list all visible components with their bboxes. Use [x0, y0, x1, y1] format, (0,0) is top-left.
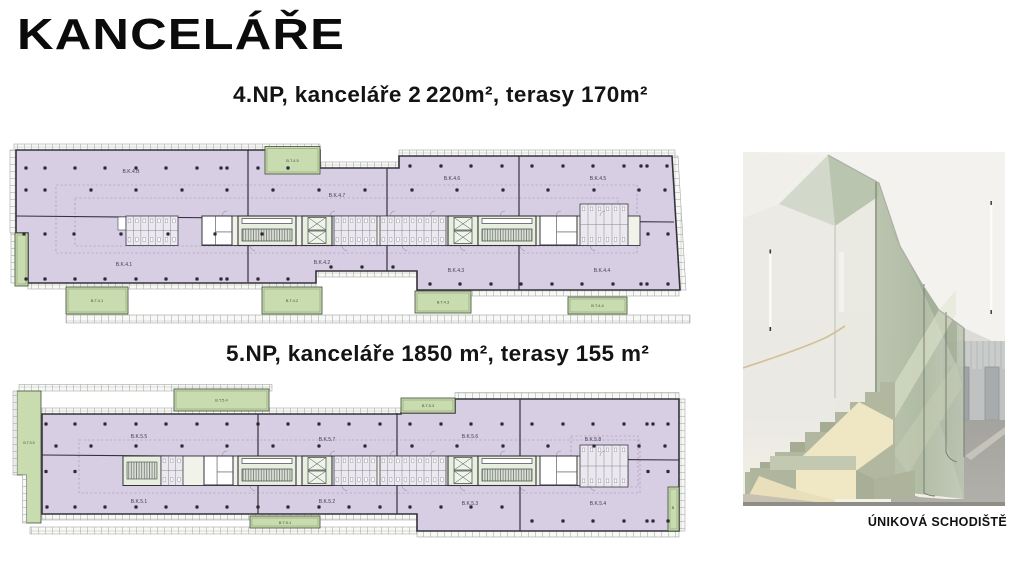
svg-text:B.K.5.7: B.K.5.7 [319, 437, 336, 443]
svg-text:B: B [672, 505, 675, 510]
svg-text:B.T.4.1: B.T.4.1 [91, 298, 104, 303]
svg-text:B.K.5.3: B.K.5.3 [462, 501, 479, 507]
svg-text:B.K.5.1: B.K.5.1 [131, 499, 148, 505]
svg-text:B.K.5.8: B.K.5.8 [585, 437, 602, 443]
svg-text:B.K.5.2: B.K.5.2 [319, 499, 336, 505]
svg-text:B.K.4.4: B.K.4.4 [594, 268, 611, 274]
svg-text:B.T.4.5: B.T.4.5 [286, 158, 299, 163]
svg-text:B.K.4.6: B.K.4.6 [444, 176, 461, 182]
svg-text:B.K.4.7: B.K.4.7 [329, 193, 346, 199]
svg-text:B.K.4.1: B.K.4.1 [116, 262, 133, 268]
svg-text:B.T.4.3: B.T.4.3 [437, 300, 450, 305]
svg-text:B.K.4.5: B.K.4.5 [590, 176, 607, 182]
svg-text:B.T.5.1: B.T.5.1 [279, 520, 292, 525]
svg-text:B.K.4.2: B.K.4.2 [314, 260, 331, 266]
svg-text:B.T.5.4: B.T.5.4 [215, 398, 228, 403]
svg-text:B.T.4.2: B.T.4.2 [286, 298, 299, 303]
svg-text:B.K.4.3: B.K.4.3 [448, 268, 465, 274]
svg-text:B.T.4.4: B.T.4.4 [591, 303, 604, 308]
svg-text:B.T.5.5: B.T.5.5 [23, 441, 34, 445]
svg-text:B.K.5.4: B.K.5.4 [590, 501, 607, 507]
svg-text:B.K.5.6: B.K.5.6 [462, 434, 479, 440]
svg-text:B.K.4.B: B.K.4.B [123, 169, 141, 175]
svg-text:B.T.5.3: B.T.5.3 [422, 403, 435, 408]
svg-text:B.K.5.5: B.K.5.5 [131, 434, 148, 440]
